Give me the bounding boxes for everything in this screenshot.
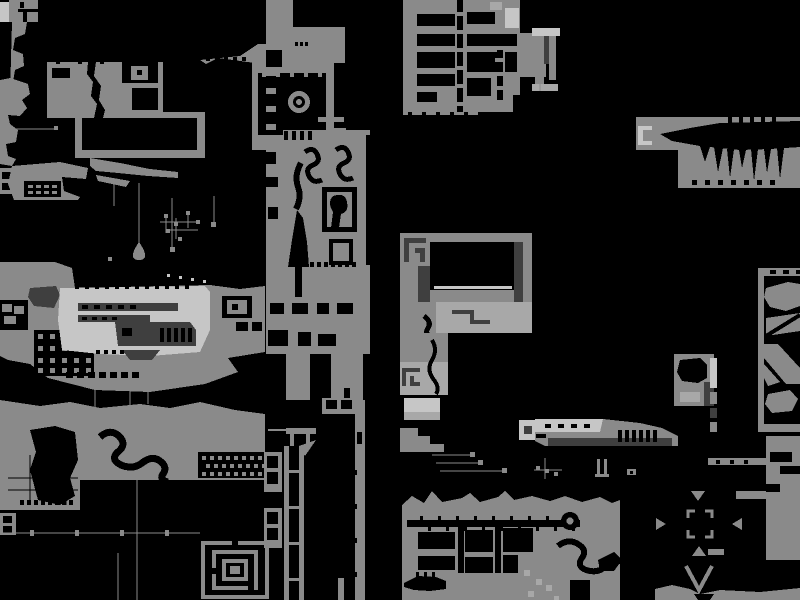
shaft-room-b xyxy=(341,400,352,409)
district-room-j xyxy=(467,78,491,96)
p-dark-col xyxy=(514,242,523,310)
wire-nw-node xyxy=(54,126,58,130)
flats-ticks xyxy=(215,281,259,286)
hangar-hmark-bar xyxy=(766,136,787,138)
maze-gap-c xyxy=(248,586,254,592)
gate-bracket-br xyxy=(705,530,712,537)
p-mid-light xyxy=(436,302,532,333)
shaft-room-a xyxy=(326,400,337,409)
cs-edge-black xyxy=(366,135,370,265)
pebble-c xyxy=(528,591,534,597)
dock-cell-a xyxy=(3,516,12,523)
district-ladder xyxy=(457,0,463,112)
stub-strip xyxy=(338,578,344,600)
cs-cell-r1a xyxy=(270,303,284,314)
ark-engine-port xyxy=(122,328,132,336)
works-node-a xyxy=(470,452,475,457)
fish-fins xyxy=(416,572,435,577)
east-slot-c xyxy=(766,484,780,492)
gauge-feet xyxy=(595,474,609,477)
p-greek2-b xyxy=(402,368,406,386)
wire-node-c xyxy=(186,211,190,215)
gate-arrow-n xyxy=(691,491,705,501)
wire-node-a xyxy=(164,214,168,218)
gate-bracket-bl xyxy=(688,530,695,537)
cell-light xyxy=(680,392,700,402)
east-bar-c xyxy=(708,549,724,555)
cs-tunnel-left xyxy=(296,163,301,209)
map-viewport xyxy=(0,0,800,600)
pebble-d xyxy=(546,585,552,591)
relay-slot xyxy=(630,471,633,474)
wire-node-b xyxy=(174,222,178,226)
slab-room-a xyxy=(52,68,70,78)
east-node-b xyxy=(792,425,797,430)
tl-corner-notch-h xyxy=(18,9,38,12)
district-room-h xyxy=(467,52,497,72)
tl-blob xyxy=(0,78,30,166)
maze-gap-a xyxy=(232,541,238,547)
shore-floor xyxy=(655,585,800,600)
southland-cavern xyxy=(30,426,78,505)
lowtown-duct-a xyxy=(458,527,464,573)
works-light-base xyxy=(404,412,440,420)
district-light-a xyxy=(505,8,519,28)
cellblock-b2 xyxy=(267,528,278,540)
flats-room-right-dot xyxy=(232,304,238,310)
dock-cell-b xyxy=(3,526,12,533)
district-room-g xyxy=(467,34,517,46)
p-greek2-d xyxy=(410,382,420,386)
p-black xyxy=(430,242,514,290)
works-light-cap xyxy=(404,398,440,412)
works-node-c xyxy=(502,468,507,473)
east-slot-a xyxy=(770,452,792,462)
maze-core xyxy=(230,566,240,574)
p-light-underline xyxy=(434,286,512,289)
cs-cell-r1b xyxy=(292,303,308,314)
district-room-c xyxy=(417,52,455,68)
tl-wing-room xyxy=(24,181,61,197)
gauge-bars xyxy=(597,459,607,475)
cs-cell-r1d xyxy=(337,303,353,314)
gate-arrow-s xyxy=(692,546,706,556)
stars-1 xyxy=(167,274,206,283)
district-room-a xyxy=(417,14,455,26)
east-bar-b xyxy=(736,491,766,499)
below-slab-black xyxy=(82,118,197,150)
tl-corner-door xyxy=(20,2,24,8)
cellblock-b1 xyxy=(267,512,278,524)
wire-node-h xyxy=(170,247,175,252)
flats-room-b xyxy=(14,306,24,314)
barge-cap-dark xyxy=(524,426,532,434)
p-greek-b xyxy=(404,238,409,262)
district-room-d xyxy=(417,74,455,86)
p-lower-light xyxy=(400,362,448,395)
wire-node-f xyxy=(196,220,200,224)
tl-swoosh xyxy=(90,158,178,178)
pebble-e xyxy=(554,596,559,600)
spire-col-b xyxy=(549,36,556,80)
t2-column-notch xyxy=(266,50,282,67)
cs-cone-tail xyxy=(295,267,302,297)
district-room-i xyxy=(505,52,517,72)
district-room-f xyxy=(467,12,495,24)
lowtown-corridor xyxy=(407,520,580,527)
flats-room-c xyxy=(4,316,16,324)
cs-cell-r2a xyxy=(268,330,288,346)
district-room-b xyxy=(417,34,455,46)
gantry-top xyxy=(286,428,316,434)
wire-node-e xyxy=(178,237,182,241)
district-cut-a xyxy=(513,95,548,120)
gantry-leg-a xyxy=(290,434,294,446)
flats-cell-b xyxy=(252,322,262,331)
cell-hole xyxy=(677,358,707,383)
t2-pocket-b xyxy=(266,177,278,187)
slab-room-c xyxy=(132,88,158,110)
region-map-canvas xyxy=(0,0,800,600)
cellblock-a2 xyxy=(267,472,278,484)
pebble-a xyxy=(524,570,530,576)
barge-hatch xyxy=(536,434,546,438)
works-steps xyxy=(400,428,444,452)
mast-seg-b xyxy=(710,408,717,418)
gate-bracket-tr xyxy=(705,511,712,518)
east-node-a xyxy=(780,425,785,430)
t2-pocket-a xyxy=(266,152,276,164)
ledge-a xyxy=(318,117,344,122)
cellblock-a1 xyxy=(267,456,278,468)
lowtown-room-f xyxy=(503,555,518,573)
t2-pocket-c xyxy=(268,207,278,219)
shaft-wall-right xyxy=(299,446,304,600)
flats-room-a xyxy=(2,304,12,312)
mast-light xyxy=(710,358,717,388)
district-room-e xyxy=(417,92,437,102)
p-dark-bar xyxy=(418,266,430,302)
wire-node-i xyxy=(211,222,216,227)
pillar-notch xyxy=(357,432,362,444)
lowtown-room-d xyxy=(418,556,455,570)
wire-cross-nodes xyxy=(536,466,558,476)
lowtown-room-e xyxy=(465,557,493,573)
eye-core xyxy=(567,518,574,525)
under-pocket xyxy=(570,580,590,600)
spire-base xyxy=(532,84,558,91)
mast-seg-c xyxy=(710,422,717,432)
lowtown-duct-b xyxy=(495,527,501,573)
pillar-strip xyxy=(355,400,365,600)
lowtown-room-a xyxy=(418,532,455,549)
p-greek-d xyxy=(420,248,425,262)
cs-col-left xyxy=(286,352,310,400)
wire-node-d xyxy=(166,229,170,233)
cs-cell-r2b xyxy=(298,332,311,346)
lowtown-room-b xyxy=(465,530,493,552)
flats-cell-a xyxy=(236,322,248,331)
slab-room-b-dot xyxy=(137,70,142,75)
tl-corner-notch-v xyxy=(23,12,27,22)
cs-cell-r1c xyxy=(317,303,329,314)
gate-bracket-tl xyxy=(688,511,695,518)
pebble-b xyxy=(536,579,542,585)
gate-arrow-e xyxy=(732,518,742,530)
mast-seg-a xyxy=(710,392,717,404)
district-light-b xyxy=(490,2,502,10)
lowtown-room-c xyxy=(503,528,533,552)
gate-vee xyxy=(686,566,712,590)
water-drop xyxy=(133,242,145,260)
tl-swoosh-2 xyxy=(96,175,130,187)
cs-room-b-fill xyxy=(333,243,349,261)
cs-cell-r2c xyxy=(318,334,336,346)
shaft-wall-left xyxy=(284,446,289,600)
ark-row-1 xyxy=(78,303,178,311)
ring-core xyxy=(296,99,302,105)
spire-top-light xyxy=(532,28,560,36)
gate-arrow-w xyxy=(656,518,666,530)
maze-gap-b xyxy=(212,568,218,574)
works-node-b xyxy=(478,460,483,465)
spire-core xyxy=(544,36,549,64)
wire-node-g xyxy=(108,257,112,261)
east-slot-b xyxy=(780,466,800,474)
